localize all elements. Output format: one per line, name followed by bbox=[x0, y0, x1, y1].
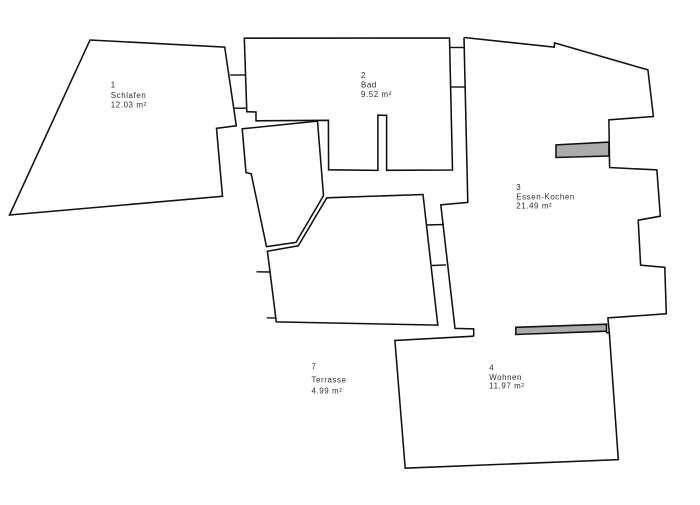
svg-text:Essen-Kochen: Essen-Kochen bbox=[516, 192, 575, 201]
svg-text:Bad: Bad bbox=[361, 81, 377, 90]
svg-text:3: 3 bbox=[516, 183, 521, 192]
svg-text:11.97 m²: 11.97 m² bbox=[489, 382, 524, 391]
svg-text:Wohnen: Wohnen bbox=[489, 373, 522, 382]
svg-text:7: 7 bbox=[312, 363, 317, 372]
svg-text:9.52 m²: 9.52 m² bbox=[361, 90, 392, 99]
svg-text:21.49 m²: 21.49 m² bbox=[516, 202, 552, 211]
svg-text:Terrasse: Terrasse bbox=[312, 375, 347, 384]
svg-text:1: 1 bbox=[111, 81, 116, 90]
svg-text:4.99 m²: 4.99 m² bbox=[312, 386, 343, 395]
svg-text:2: 2 bbox=[361, 71, 366, 80]
svg-text:Schlafen: Schlafen bbox=[111, 91, 147, 100]
svg-text:12.03 m²: 12.03 m² bbox=[111, 100, 147, 109]
svg-text:4: 4 bbox=[489, 363, 494, 372]
